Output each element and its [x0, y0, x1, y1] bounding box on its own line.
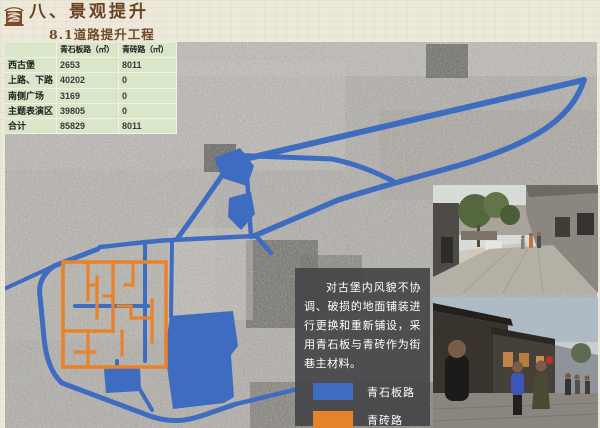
table-row-name: 南侧广场 — [5, 89, 57, 104]
table-cell-brick: 0 — [119, 104, 177, 119]
table-header-stone: 青石板路（㎡） — [57, 43, 119, 58]
legend-item-stone: 青石板路 — [304, 383, 421, 400]
description-panel: 对古堡内风貌不协调、破损的地面铺装进行更换和重新铺设，采用青石板与青砖作为街巷主… — [295, 268, 430, 426]
table-row-total: 合计 — [5, 119, 57, 134]
table-header-brick: 青砖路（㎡） — [119, 43, 177, 58]
table-cell-brick: 8011 — [119, 58, 177, 73]
page-title: 八、景观提升 — [29, 2, 155, 22]
description-text: 对古堡内风貌不协调、破损的地面铺装进行更换和重新铺设，采用青石板与青砖作为街巷主… — [304, 279, 421, 374]
table-cell-stone: 39805 — [57, 104, 119, 119]
brick-road-swatch — [313, 411, 353, 428]
table-row-name: 上路、下路 — [5, 73, 57, 88]
table-row-name: 主题表演区 — [5, 104, 57, 119]
legend-item-brick: 青砖路 — [304, 411, 421, 428]
table-cell-stone: 2653 — [57, 58, 119, 73]
road-area-table: 青石板路（㎡） 青砖路（㎡） 西古堡 2653 8011 上路、下路 40202… — [5, 42, 177, 134]
legend-label: 青石板路 — [367, 384, 415, 400]
page-subtitle: 8.1道路提升工程 — [49, 24, 155, 43]
slide-header: 八、景观提升 8.1道路提升工程 — [3, 2, 155, 43]
table-cell-brick: 0 — [119, 73, 177, 88]
table-cell-brick: 8011 — [119, 119, 177, 134]
pavilion-stamp-icon — [3, 5, 25, 27]
legend-label: 青砖路 — [367, 412, 403, 428]
photo-street-daytime — [433, 185, 598, 293]
table-header-blank — [5, 43, 57, 58]
table-cell-brick: 0 — [119, 89, 177, 104]
table-cell-stone: 3169 — [57, 89, 119, 104]
table-cell-stone: 85829 — [57, 119, 119, 134]
table-cell-stone: 40202 — [57, 73, 119, 88]
table-row-name: 西古堡 — [5, 58, 57, 73]
map-legend: 青石板路 青砖路 — [304, 383, 421, 428]
photo-street-evening — [433, 297, 598, 428]
stone-road-swatch — [313, 383, 353, 400]
